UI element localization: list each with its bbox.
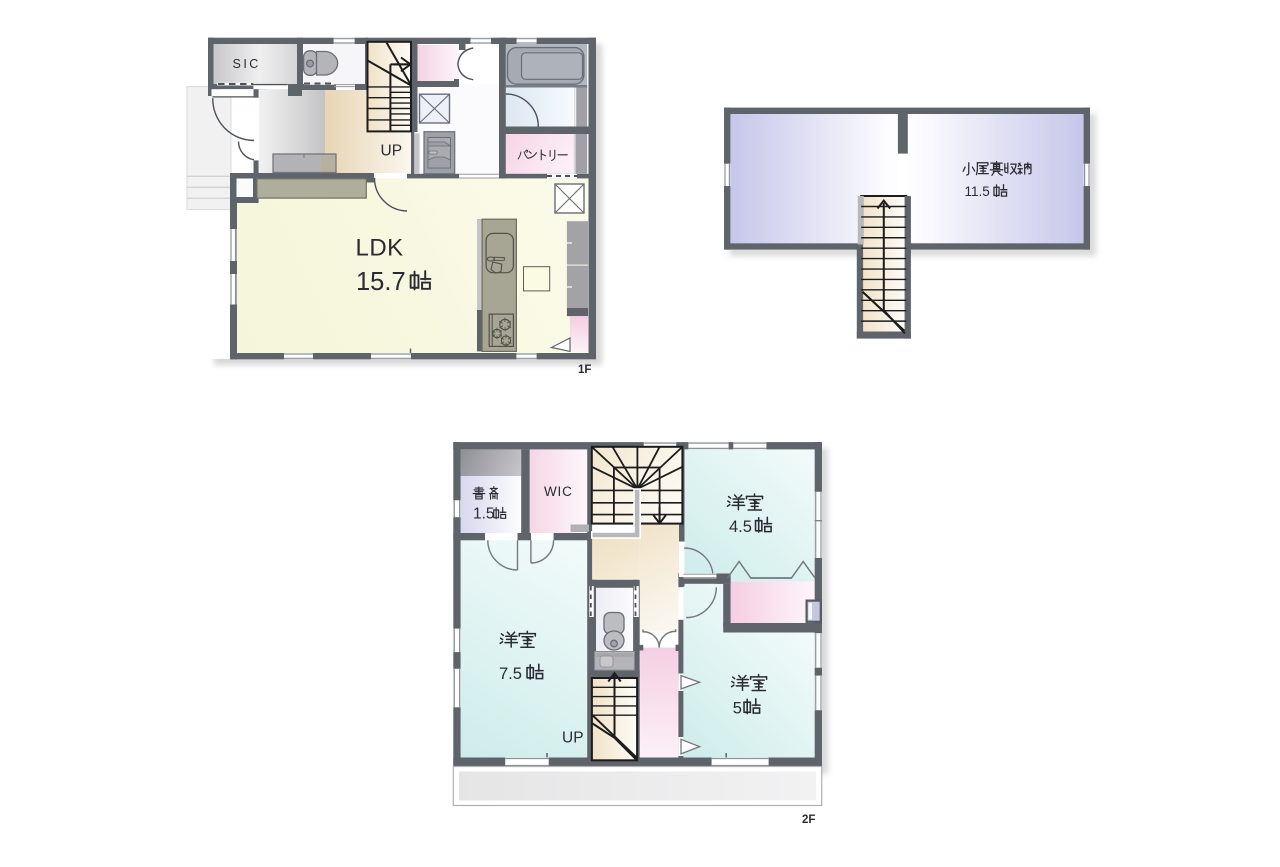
svg-text:2F: 2F: [802, 814, 815, 826]
svg-text:WIC: WIC: [544, 484, 573, 499]
svg-text:15.7: 15.7: [356, 268, 406, 296]
svg-text:5: 5: [733, 700, 742, 718]
svg-text:UP: UP: [562, 730, 584, 747]
svg-text:1.5: 1.5: [473, 506, 495, 523]
svg-text:7.5: 7.5: [499, 665, 522, 683]
svg-text:LDK: LDK: [356, 235, 404, 262]
svg-text:SIC: SIC: [233, 57, 261, 71]
svg-text:4.5: 4.5: [729, 518, 752, 536]
svg-text:UP: UP: [381, 143, 403, 160]
svg-text:1F: 1F: [578, 364, 591, 376]
svg-text:11.5: 11.5: [965, 184, 990, 199]
